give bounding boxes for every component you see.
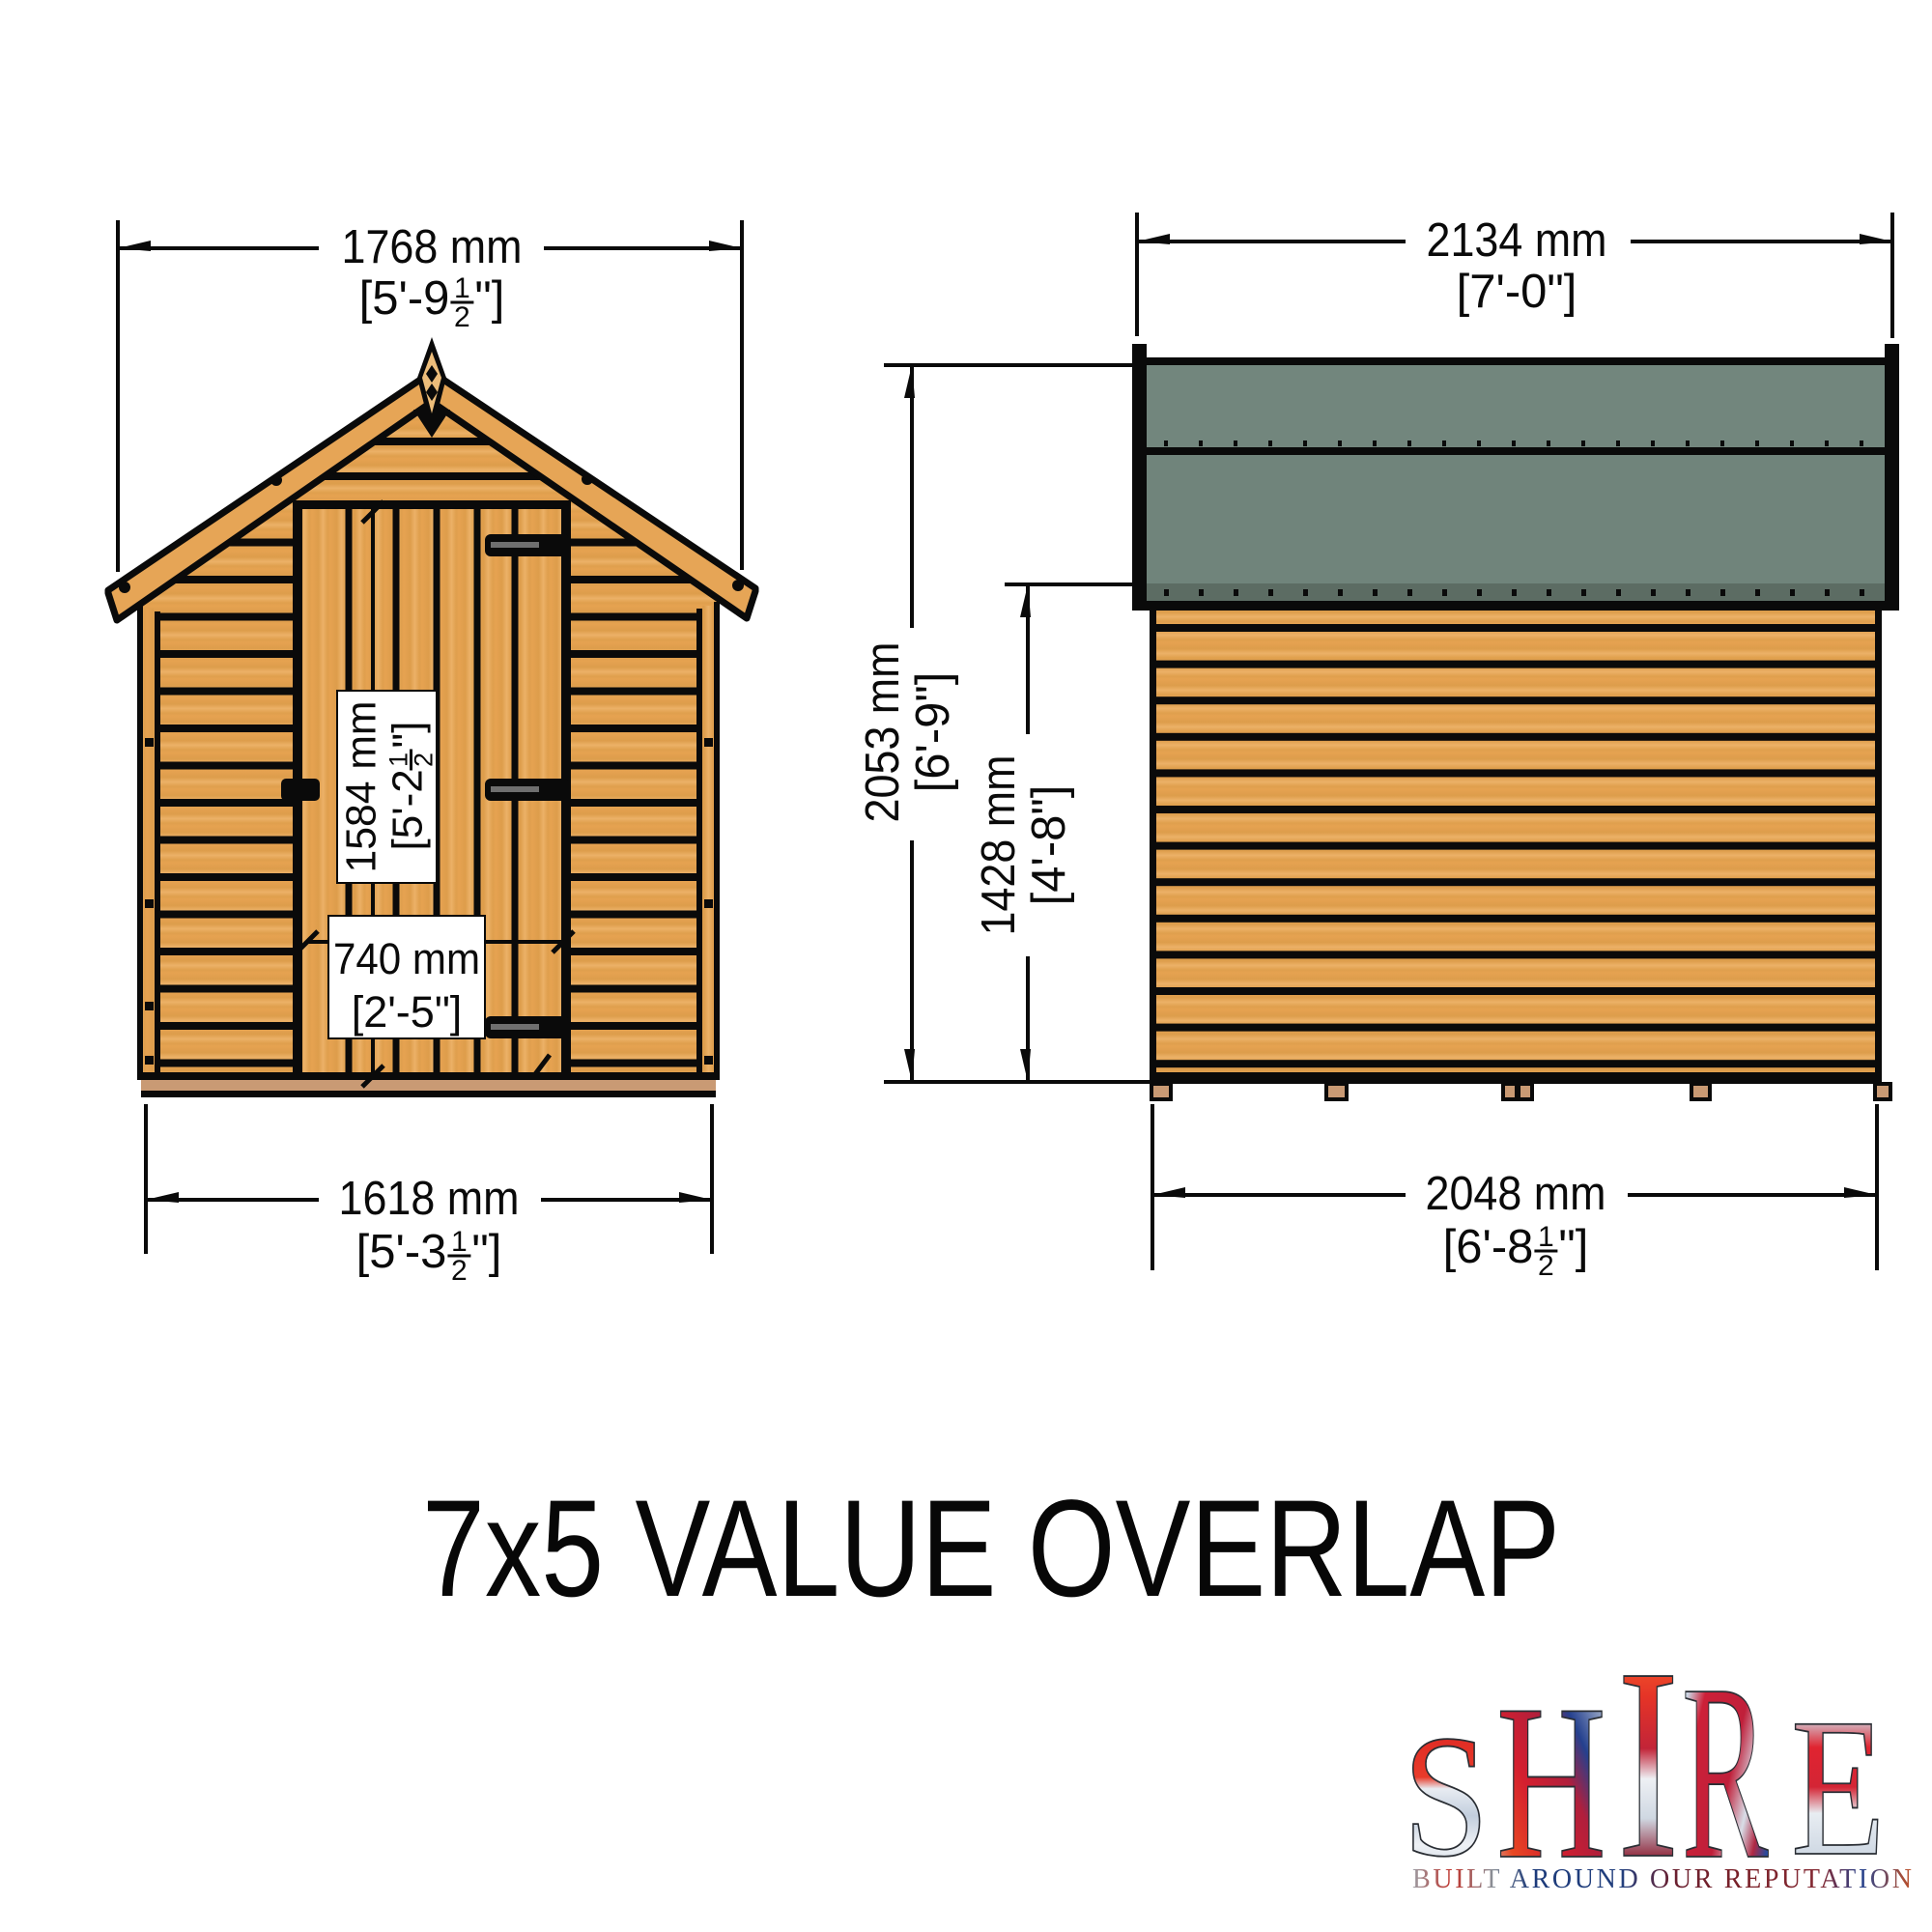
svg-text:7x5 VALUE OVERLAP: 7x5 VALUE OVERLAP: [422, 1472, 1560, 1626]
svg-text:2: 2: [1538, 1250, 1554, 1282]
svg-text:2134 mm: 2134 mm: [1427, 214, 1607, 267]
svg-text:[5'-3: [5'-3: [356, 1226, 447, 1278]
svg-text:"]: "]: [474, 272, 504, 325]
svg-text:[2'-5"]: [2'-5"]: [352, 987, 463, 1037]
svg-text:1584 mm: 1584 mm: [338, 701, 385, 873]
svg-text:[6'-8: [6'-8: [1443, 1221, 1534, 1273]
svg-text:1: 1: [1538, 1221, 1554, 1253]
svg-text:[6'-9"]: [6'-9"]: [907, 672, 959, 793]
svg-text:2: 2: [410, 753, 439, 767]
svg-text:1618 mm: 1618 mm: [339, 1173, 520, 1225]
svg-text:1428 mm: 1428 mm: [973, 755, 1025, 936]
svg-text:[7'-0"]: [7'-0"]: [1457, 266, 1577, 318]
svg-text:2053 mm: 2053 mm: [857, 642, 909, 823]
svg-text:2: 2: [451, 1255, 468, 1287]
svg-text:2: 2: [454, 301, 470, 333]
svg-text:"]: "]: [1558, 1221, 1588, 1273]
svg-text:"]: "]: [471, 1226, 501, 1278]
svg-text:1: 1: [451, 1226, 468, 1258]
svg-text:[4'-8"]: [4'-8"]: [1023, 785, 1075, 906]
svg-text:1: 1: [454, 272, 470, 304]
svg-text:2048 mm: 2048 mm: [1426, 1168, 1606, 1220]
svg-text:1768 mm: 1768 mm: [342, 221, 523, 273]
svg-text:740 mm: 740 mm: [333, 934, 480, 983]
svg-text:[5'-9: [5'-9: [359, 272, 450, 325]
svg-text:BUILT AROUND OUR REPUTATION: BUILT AROUND OUR REPUTATION: [1412, 1864, 1912, 1894]
svg-text:"]: "]: [384, 722, 432, 749]
svg-text:[5'-2: [5'-2: [384, 769, 432, 850]
